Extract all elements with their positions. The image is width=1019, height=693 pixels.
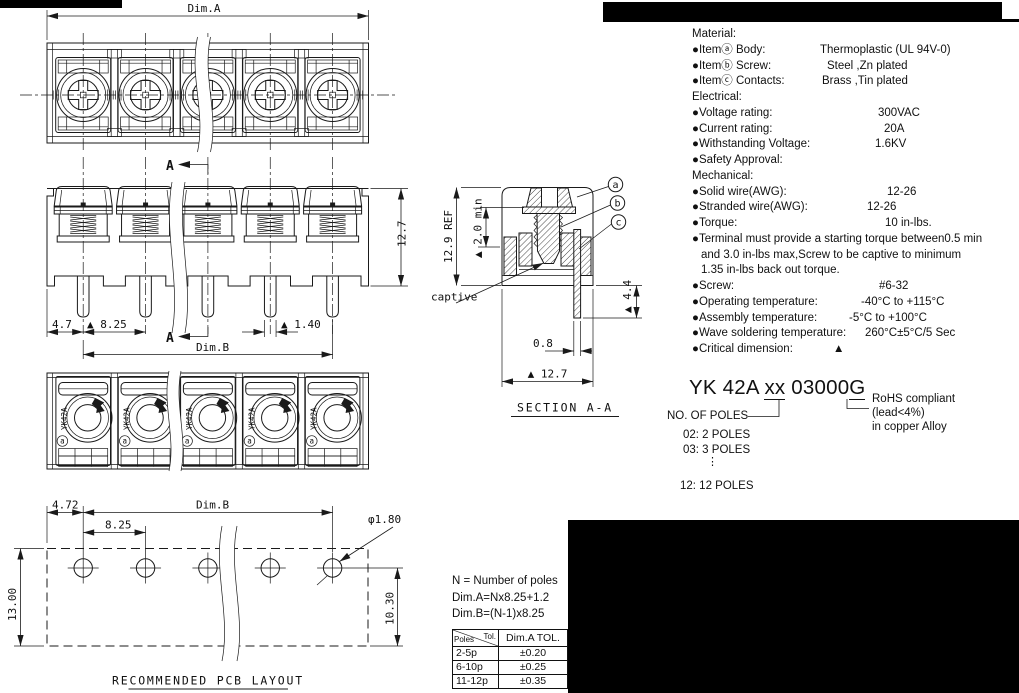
callout-b: b — [614, 199, 620, 210]
redaction-line-top-edge — [1002, 19, 1019, 22]
poles-code-placeholder: xx — [764, 376, 785, 400]
table-row: 2-5p ±0.20 — [453, 646, 567, 660]
rohs-note: RoHS compliant (lead<4%) in copper Alloy — [872, 393, 955, 434]
dim-12-7-section: ▲ 12.7 — [528, 368, 568, 381]
dimension-formulas: N = Number of poles Dim.A=Nx8.25+1.2 Dim… — [452, 573, 558, 623]
pcb-dims: 4.72 Dim.B 8.25 φ1.80 13.00 10.30 — [6, 499, 403, 647]
table-row: 11-12p ±0.35 — [453, 674, 567, 688]
spec-line: ●Wave soldering temperature:260°C±5°C/5 … — [692, 326, 1018, 342]
callout-c: c — [615, 218, 621, 229]
spec-line: ●Itemⓐ Body:Thermoplastic (UL 94V-0) — [692, 43, 1018, 59]
dim-0-8: 0.8 — [533, 337, 553, 350]
dim-4-7-label: 4.7 — [52, 318, 72, 331]
screw-washer — [523, 207, 576, 214]
spec-line: Electrical: — [692, 90, 1018, 106]
table-row: 6-10p ±0.25 — [453, 660, 567, 674]
part-number-connectors — [748, 399, 869, 417]
screw-shaft — [537, 214, 560, 264]
spec-line: ●Safety Approval: — [692, 153, 1018, 169]
spec-line: ●Itemⓒ Contacts:Brass ,Tin plated — [692, 74, 1018, 90]
spec-line: ●Critical dimension:▲ — [692, 342, 1018, 358]
pcb-layout-view: 4.72 Dim.B 8.25 φ1.80 13.00 10.30 RECOMM… — [6, 499, 403, 690]
no-of-poles-label: NO. OF POLES — [667, 410, 748, 422]
housing-pocket — [504, 237, 517, 276]
table-diagonal-header: Tol. Poles — [453, 630, 499, 646]
dim-b-pcb: Dim.B — [196, 499, 229, 512]
front-view: Dim.A — [20, 2, 396, 152]
front-view-break — [195, 37, 213, 152]
table-col-header: Dim.A TOL. — [499, 630, 567, 646]
spec-line: ●Withstanding Voltage:1.6KV — [692, 137, 1018, 153]
dim-12-7-label: 12.7 — [396, 221, 409, 248]
spec-line: ●Itemⓑ Screw:Steel ,Zn plated — [692, 59, 1018, 75]
redaction-bar-top-right — [603, 2, 1002, 22]
spec-line: ●Solid wire(AWG):12-26 — [692, 185, 1018, 201]
dim-8-25-label: ▲ 8.25 — [87, 318, 127, 331]
spec-line: and 3.0 in-lbs max,Screw to be captive t… — [692, 248, 1018, 264]
spec-line: Material: — [692, 27, 1018, 43]
screw-head — [527, 188, 542, 207]
section-title: SECTION A-A — [517, 401, 613, 415]
dim-hole-dia: φ1.80 — [368, 513, 401, 526]
redaction-block-title-area — [568, 520, 1019, 693]
dim-13-00: 13.00 — [6, 588, 19, 621]
bottom-view — [47, 371, 369, 471]
callout-a: a — [612, 180, 618, 191]
redaction-bar-top-left — [0, 0, 122, 8]
bottom-view-walls — [111, 373, 305, 469]
dim-2-0-min: ▲ 2.0 min — [472, 198, 485, 258]
captive-label: captive — [431, 291, 477, 304]
part-number: YK 42A xx 03000G — [689, 376, 865, 400]
dim-4-72: 4.72 — [52, 499, 79, 512]
side-view: A A 12.7 4.7 ▲ 8.25 ▲ 1.40 Dim.B — [47, 157, 409, 359]
dim-1-40-label: ▲ 1.40 — [281, 318, 321, 331]
dim-b-side-label: Dim.B — [196, 341, 229, 354]
poles-option: 12: 12 POLES — [680, 480, 754, 492]
drawing-sheet: YK42A a — [0, 0, 1019, 693]
dim-12-9-ref: 12.9 REF — [442, 210, 455, 263]
spec-line: ●Stranded wire(AWG):12-26 — [692, 200, 1018, 216]
table-header-row: Tol. Poles Dim.A TOL. — [453, 630, 567, 646]
rohs-code: G — [849, 376, 865, 400]
section-letter-top: A — [166, 159, 174, 174]
spec-line: ●Screw:#6-32 — [692, 279, 1018, 295]
pcb-title: RECOMMENDED PCB LAYOUT — [112, 674, 304, 688]
section-view-dims: 12.9 REF ▲ 2.0 min captive 0.8 ▲ 12.7 ▲ … — [431, 188, 642, 388]
poles-option: 03: 3 POLES — [683, 444, 750, 456]
tolerance-table: Tol. Poles Dim.A TOL. 2-5p ±0.20 6-10p ±… — [452, 629, 568, 689]
dim-a-label: Dim.A — [187, 2, 220, 15]
solder-pin — [574, 230, 581, 319]
section-view: a b c 12.9 REF ▲ 2.0 min captive 0.8 — [431, 177, 642, 416]
section-letter-bottom: A — [166, 331, 174, 346]
specifications-list: Material: ●Itemⓐ Body:Thermoplastic (UL … — [692, 27, 1018, 358]
spec-line: ●Torque:10 in-lbs. — [692, 216, 1018, 232]
spec-line: ●Terminal must provide a starting torque… — [692, 232, 1018, 248]
poles-ellipsis: ⋮ — [707, 457, 718, 468]
pcb-break — [219, 526, 239, 661]
poles-option: 02: 2 POLES — [683, 429, 750, 441]
dim-8-25-pcb: 8.25 — [105, 519, 132, 532]
spec-line: ●Operating temperature:-40°C to +115°C — [692, 295, 1018, 311]
dim-4-4: ▲ 4.4 — [621, 280, 634, 313]
spec-line: 1.35 in-lbs back out torque. — [692, 263, 1018, 279]
spec-line: ●Voltage rating:300VAC — [692, 106, 1018, 122]
spec-line: ●Assembly temperature:-5°C to +100°C — [692, 311, 1018, 327]
spec-line: ●Current rating:20A — [692, 122, 1018, 138]
spec-line: Mechanical: — [692, 169, 1018, 185]
dim-10-30: 10.30 — [384, 592, 397, 625]
